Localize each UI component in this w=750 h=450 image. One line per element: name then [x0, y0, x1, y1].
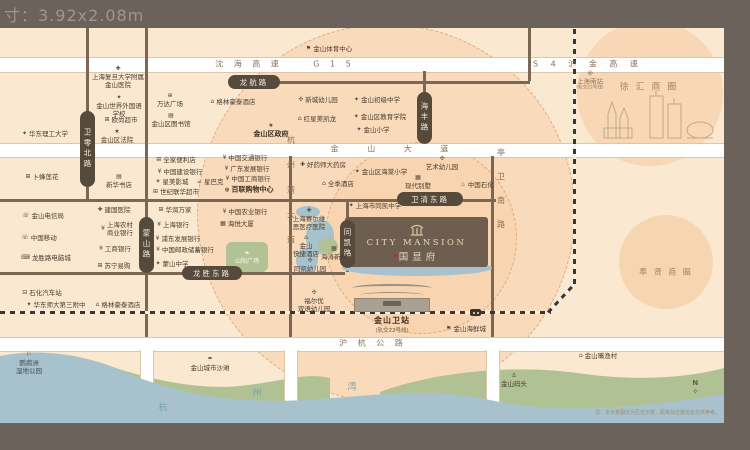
auchan-supermarket: ⊞欧尚超市	[104, 116, 137, 124]
poi-label: 广东发展银行	[230, 165, 269, 173]
store-icon: ⊞	[156, 156, 161, 164]
flag-icon: ⚑	[306, 45, 311, 53]
greentree-inn-south: ⌂格林豪泰酒店	[96, 301, 141, 309]
plaza-label: 山阳广场	[235, 258, 259, 265]
road-name-huhang-highway: 沪 杭 公 路	[339, 338, 407, 349]
store-icon: ⊞	[97, 262, 102, 270]
poi-label: 双语幼儿园	[298, 305, 331, 313]
jinshan-junior-middle-school: ✦金山初级中学	[354, 96, 400, 104]
compass-north-label: N	[692, 379, 698, 387]
building-icon: ▦	[415, 174, 421, 182]
court-icon: ★	[114, 128, 119, 136]
jinshan-city-beach: ☂金山城市沙滩	[191, 356, 230, 372]
poi-label: 万达广场	[157, 100, 183, 108]
ship-icon: ⚓	[511, 372, 516, 380]
jinshanwei-station: 金山卫站 (轨交22号线)	[350, 284, 434, 334]
bus-icon: ⊟	[22, 289, 27, 297]
station-building	[354, 298, 430, 312]
haitang-primary-school: ✦金山区海棠小学	[355, 168, 408, 176]
poi-label: 华东师大第三附中	[34, 301, 86, 309]
jinshan-district-government: ★金山区政府	[254, 122, 289, 138]
school-icon: ✦	[355, 168, 360, 176]
lianhua-supermarket: ⊞世纪联华超市	[153, 188, 199, 196]
bank-icon: ¥	[225, 165, 229, 173]
icbc-bank-north: ¥中国工商银行	[226, 175, 271, 183]
gas-icon: ♨	[460, 181, 465, 189]
familymart: ⊞全家便利店	[156, 156, 196, 164]
cart-icon: ⊞	[25, 173, 30, 181]
hotel-icon: ⌂	[211, 98, 215, 106]
road	[145, 28, 148, 337]
poi-label: 星巴克	[204, 178, 224, 186]
guangdong-development-bank: ¥广东发展银行	[225, 165, 270, 173]
road-pill-mengshan-road: 蒙山路	[139, 217, 154, 273]
hangzhou-bay-label-char: 杭	[158, 401, 167, 414]
project-block: CITY MANSION 国显府	[345, 217, 488, 267]
bank-icon: ¥	[156, 235, 160, 243]
road-pill-weiling-north-road: 卫零北路	[80, 111, 95, 187]
project-logo-icon	[409, 222, 425, 237]
school-icon: ✦	[349, 202, 354, 210]
haiyue-building: ▦海悦大厦	[220, 220, 254, 228]
poi-label: 建国医院	[105, 206, 131, 214]
poi-label: 金山区海棠小学	[362, 168, 408, 176]
road-name-jinshan-avenue: 金 山 大 道	[331, 144, 462, 155]
poi-label: 金山	[300, 242, 313, 250]
poi-label: 石化汽车站	[29, 289, 62, 297]
road-name-tingwei-south-road: 亭卫南路	[496, 148, 507, 244]
bank-icon: ¥	[158, 168, 162, 176]
china-mobile: ☏中国移动	[21, 234, 57, 242]
poi-label: 金山电信局	[32, 212, 65, 220]
phone-icon: ☏	[21, 234, 29, 242]
haoyaoshi-pharmacy: ✚好药师大药房	[300, 161, 346, 169]
cart-icon: ⊞	[104, 116, 109, 124]
jinshan-telecom: ☏金山电信局	[22, 212, 64, 220]
fudan-jinshan-hospital: ✚上海复旦大学附属金山医院	[92, 65, 144, 89]
hotel-icon: ⌂	[322, 180, 326, 188]
umbrella-icon: ☂	[207, 356, 212, 364]
size-label: 寸：3.92x2.08m	[0, 2, 144, 26]
starbucks: ☕星巴克	[197, 178, 224, 186]
poi-label: 新城幼儿园	[305, 96, 338, 104]
bailian-shopping-center: ⊕百联购物中心	[224, 186, 273, 195]
location-map: ❧ 山阳广场 金山卫站 (轨交22号线) CITY MANSION 国显府	[0, 0, 750, 450]
poi-label: 世纪联华超市	[160, 188, 199, 196]
project-name-cn: 国显府	[394, 249, 440, 263]
metro-icon: ◎	[587, 69, 592, 77]
train-icon	[470, 309, 481, 316]
xinhua-bookstore: ▤新华书店	[106, 173, 132, 189]
home-icon: ⌂	[579, 352, 583, 360]
pinwheel-icon: ✣	[439, 155, 444, 163]
bank-icon: ¥	[223, 154, 227, 162]
hospital-icon: ✚	[115, 65, 120, 73]
project-name-en: CITY MANSION	[367, 238, 467, 248]
hangzhou-bay-label-char: 湾	[347, 380, 356, 393]
poi-label: 上海农村	[107, 221, 133, 229]
stellar-cinema: ✶星美影城	[155, 178, 188, 186]
poi-sub-label: (轨交22号线)	[576, 85, 603, 91]
school-icon: ✦	[354, 113, 359, 121]
poi-label: 金山海鲜城	[453, 325, 486, 333]
poi-label: 上海复旦大学附属	[92, 73, 144, 81]
pinwheel-icon: ✣	[307, 257, 312, 265]
jinshan-sports-center: ⚑金山体育中心	[306, 45, 352, 53]
greentree-inn-north: ⌂格林豪泰酒店	[211, 98, 256, 106]
road-pill-longsheng-east-road: 龙胜东路	[182, 266, 242, 280]
hotel-icon: ⌂	[304, 234, 308, 242]
bottom-frame	[0, 423, 750, 450]
art-kindergarten: ✣艺术幼儿园	[426, 155, 459, 171]
bank-icon: ¥	[156, 246, 160, 254]
jinshan-world-foreign-language-school: ✦金山世界外国语学校	[96, 94, 142, 118]
bank-icon: ¥	[223, 208, 227, 216]
hospital-icon: ✚	[97, 206, 102, 214]
poi-label: 上海银行	[163, 221, 189, 229]
project-name-cn-text: 国显府	[399, 249, 440, 263]
cart-icon: ⊞	[158, 206, 163, 214]
pinwheel-icon: ✣	[311, 289, 316, 297]
poi-label: 华东理工大学	[29, 130, 68, 138]
poi-label: 星美影城	[163, 178, 189, 186]
bank-icon: ¥	[226, 175, 230, 183]
lotus-supermarket: ⊞卜蜂莲花	[25, 173, 58, 181]
china-resources-vanguard: ⊞华润万家	[158, 206, 191, 214]
school-icon: ✦	[26, 301, 31, 309]
jinshan-education-institute: ✦金山区教育学院	[354, 113, 407, 121]
poi-label: 卜蜂莲花	[33, 173, 59, 181]
modern-villa: ▦现代别墅	[405, 174, 431, 190]
poi-label: 全季酒店	[328, 180, 354, 188]
china-construction-bank: ¥中国建设银行	[158, 168, 203, 176]
poi-label: 中国交通银行	[228, 154, 267, 162]
bank-of-shanghai: ¥上海银行	[157, 221, 189, 229]
poi-label: 格林豪泰酒店	[216, 98, 255, 106]
compass: N ✧	[692, 379, 699, 396]
building-icon: ▦	[331, 245, 337, 253]
cart-icon: ⊞	[153, 188, 158, 196]
hospital-icon: ✚	[300, 161, 305, 169]
tongkai-middle-school: ✦上海市同凯中学	[349, 202, 402, 210]
jinshan-primary-school: ✦金山小学	[356, 126, 389, 134]
right-frame	[724, 28, 750, 423]
poi-label: 福尔优	[304, 297, 324, 305]
road-pill-weiqing-east-road: 卫清东路	[397, 192, 463, 206]
poi-label: 好药师大药房	[307, 161, 346, 169]
poi-label: 红星美凯龙	[304, 115, 337, 123]
mall-icon: ⊕	[167, 92, 172, 100]
poi-label: 海悦大厦	[228, 220, 254, 228]
yingwuzhou-wetland-park: ⚐鹦鹉洲湿地公园	[16, 351, 42, 375]
mall-icon: ⊕	[224, 186, 229, 194]
postal-savings-bank: ¥中国邮政储蓄银行	[156, 246, 214, 254]
station-name: 金山卫站	[374, 315, 410, 326]
coffee-icon: ☕	[197, 178, 202, 186]
xuhui-business-circle: 徐 汇 商 圈	[620, 80, 679, 93]
cinema-icon: ✶	[155, 178, 160, 186]
bird-icon: ⚐	[26, 351, 31, 359]
poi-label: 上海市同凯中学	[356, 202, 402, 210]
poi-label: 蒙山中学	[163, 260, 189, 268]
poi-label: 工商银行	[105, 245, 131, 253]
shanghai-south-railway-station: ◎上海南站(轨交22号线)	[576, 69, 603, 90]
poi-label: 鹦鹉洲	[19, 359, 39, 367]
bank-icon: ¥	[99, 245, 103, 253]
poi-label: 中国建设银行	[163, 168, 202, 176]
library-icon: ▤	[168, 112, 174, 120]
poi-label: 金山城市沙滩	[191, 364, 230, 372]
poi-label: 全家便利店	[163, 156, 196, 164]
poi-label: 金山小学	[364, 126, 390, 134]
poi-label: 湿地公园	[16, 367, 42, 375]
city-skyline-art	[598, 88, 718, 140]
building-icon: ▦	[220, 220, 226, 228]
poi-label: 金山医院	[105, 81, 131, 89]
compass-needle-icon: ✧	[692, 387, 699, 396]
poi-label: 商业银行	[107, 229, 133, 237]
flag-icon: ⚑	[446, 325, 451, 333]
bank-of-communications: ¥中国交通银行	[223, 154, 268, 162]
agricultural-bank-of-china: ¥中国农业银行	[223, 208, 268, 216]
bank-icon: ¥	[101, 225, 105, 233]
poi-label: 艺术幼儿园	[426, 163, 459, 171]
poi-label: 金山体育中心	[313, 45, 352, 53]
poi-label: 中国邮政储蓄银行	[162, 246, 214, 254]
poi-label: 金山区政府	[254, 129, 289, 138]
poi-label: 金山区法院	[101, 136, 134, 144]
xincheng-kindergarten: ✣新城幼儿园	[298, 96, 338, 104]
mengshan-middle-school: ✦蒙山中学	[155, 260, 188, 268]
road-name-g15: G 1 5	[313, 60, 354, 69]
sinopec-gas: ♨中国石化	[460, 181, 493, 189]
road-pill-longhang-road: 龙航路	[228, 75, 280, 89]
poi-label: 上海赛尔维	[293, 215, 326, 223]
school-icon: ✦	[155, 260, 160, 268]
leaf-icon: ❧	[244, 249, 250, 257]
fengxian-business-circle: 奉 贤 商 圈	[639, 267, 693, 278]
hangzhou-bay-label-char: 州	[252, 386, 261, 399]
school-icon: ✦	[116, 94, 121, 102]
school-icon: ✦	[354, 96, 359, 104]
pinwheel-icon: ✣	[298, 96, 303, 104]
home-icon: ⌂	[298, 115, 302, 123]
jinshan-district-court: ★金山区法院	[101, 128, 134, 144]
hospital-icon: ✚	[306, 207, 311, 215]
fueryou-bilingual-kindergarten: ✣福尔优双语幼儿园	[298, 289, 331, 313]
map-disclaimer: 注：本示意图仅为区位示意，距离及位置信息仅供参考。	[595, 409, 720, 416]
jinshanzui-fishing-village: ⌂金山嘴渔村	[579, 352, 617, 360]
computer-icon: ⌨	[21, 254, 30, 262]
suning: ⊞苏宁易购	[97, 262, 130, 270]
poi-label: 龙胜路电脑城	[32, 254, 71, 262]
poi-label: 同凯幼儿园	[294, 265, 327, 273]
fengxian-circle	[619, 215, 713, 309]
shihua-bus-station: ⊟石化汽车站	[22, 289, 62, 297]
spd-bank: ¥浦东发展银行	[156, 235, 201, 243]
red-diamond-icon	[394, 254, 397, 257]
jinshan-pier: ⚓金山码头	[501, 372, 527, 388]
poi-label: 思医疗医院	[293, 223, 326, 231]
tongkai-kindergarten: ✣同凯幼儿园	[294, 257, 327, 273]
east-china-univ-science-tech: ✦华东理工大学	[22, 130, 68, 138]
wanda-plaza: ⊕万达广场	[157, 92, 183, 108]
poi-label: 中国工商银行	[231, 175, 270, 183]
poi-label: 华润万家	[166, 206, 192, 214]
road-name-shenhai-expressway: 沈 海 高 速	[215, 59, 283, 70]
bank-icon: ¥	[157, 221, 161, 229]
phone-icon: ☏	[22, 212, 30, 220]
red-star-macalline: ⌂红星美凯龙	[298, 115, 336, 123]
book-icon: ▤	[116, 173, 122, 181]
poi-label: 浦东发展银行	[161, 235, 200, 243]
jinshan-district-library: ▤金山区图书馆	[152, 112, 191, 128]
title-bar: 寸：3.92x2.08m	[0, 0, 750, 28]
road	[528, 28, 531, 81]
poi-label: 中国移动	[31, 234, 57, 242]
hotel-icon: ⌂	[96, 301, 100, 309]
poi-label: 格林豪泰酒店	[101, 301, 140, 309]
icbc-bank-south: ¥工商银行	[99, 245, 131, 253]
shanghai-rural-commercial-bank: ¥上海农村商业银行	[101, 221, 133, 237]
seerweisi-hospital: ✚上海赛尔维思医疗医院	[293, 207, 326, 231]
gov-icon: ★	[268, 122, 273, 130]
jinshan-express-hotel: ⌂金山快捷酒店	[293, 234, 319, 258]
poi-label: 欧尚超市	[112, 116, 138, 124]
school-icon: ✦	[22, 130, 27, 138]
poi-label: 苏宁易购	[105, 262, 131, 270]
jinshan-seafood-city: ⚑金山海鲜城	[446, 325, 486, 333]
ecnu-third-affiliated-school: ✦华东师大第三附中	[26, 301, 85, 309]
railway-line	[0, 311, 551, 314]
poi-label: 百联购物中心	[232, 186, 274, 195]
station-canopy	[352, 284, 432, 292]
jianguo-hospital: ✚建国医院	[97, 206, 130, 214]
longsheng-computer-city: ⌨龙胜路电脑城	[21, 254, 71, 262]
road-name-s4-hujin-expressway: S 4 沪 金 高 速	[533, 59, 643, 70]
poi-label: 上海南站	[577, 77, 603, 85]
poi-label: 新华书店	[106, 181, 132, 189]
road-pill-haifeng-road: 海丰路	[417, 92, 432, 144]
poi-label: 金山区教育学院	[361, 113, 407, 121]
poi-label: 中国农业银行	[228, 208, 267, 216]
poi-label: 金山嘴渔村	[585, 352, 618, 360]
school-icon: ✦	[356, 126, 361, 134]
poi-label: 中国石化	[468, 181, 494, 189]
ji-hotel: ⌂全季酒店	[322, 180, 354, 188]
poi-label: 金山初级中学	[361, 96, 400, 104]
poi-label: 金山世界外国语	[96, 102, 142, 110]
poi-label: 现代别墅	[405, 182, 431, 190]
poi-label: 金山码头	[501, 380, 527, 388]
poi-label: 金山区图书馆	[152, 120, 191, 128]
